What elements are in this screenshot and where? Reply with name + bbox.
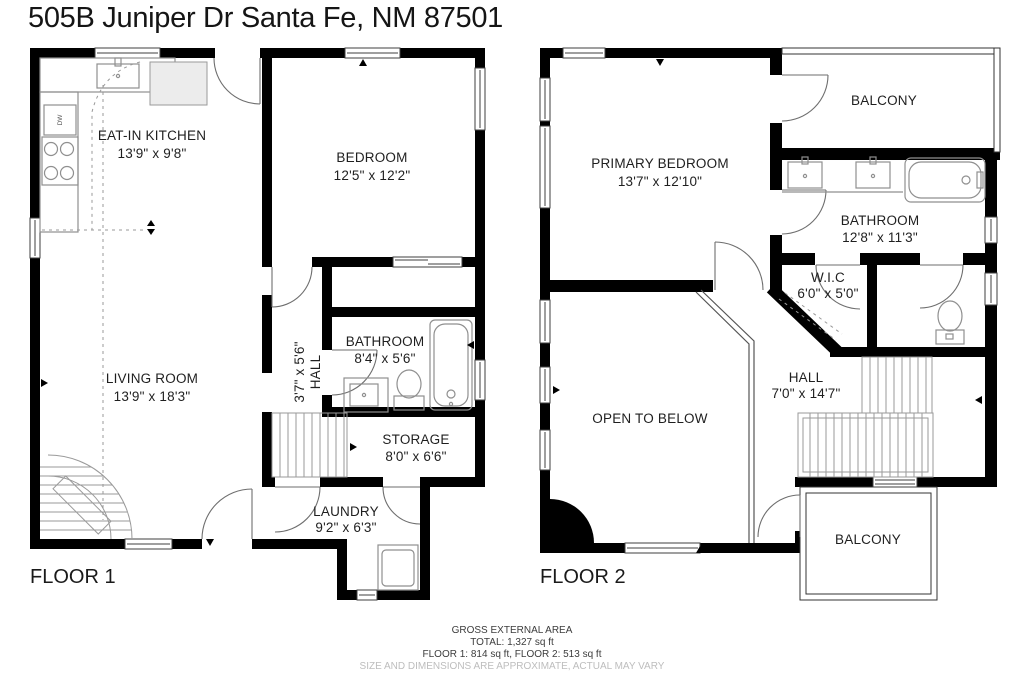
window: [985, 273, 997, 305]
dimension-arrow-icon: [147, 229, 155, 235]
stair-void-quarter: [550, 499, 594, 543]
hall2-label: HALL: [789, 370, 824, 385]
vanity-sink: [788, 157, 822, 188]
window: [540, 78, 550, 121]
area-per-floor: FLOOR 1: 814 sq ft, FLOOR 2: 513 sq ft: [0, 649, 1024, 661]
wic-label: W.I.C: [811, 270, 845, 285]
bathroom1-dims: 8'4" x 5'6": [354, 351, 415, 366]
dishwasher: DW: [44, 105, 76, 135]
laundry-right-door: [383, 487, 420, 524]
dimension-arrow-icon: [147, 220, 155, 226]
window: [540, 300, 550, 343]
area-heading: GROSS EXTERNAL AREA: [0, 625, 1024, 637]
laundry-dims: 9'2" x 6'3": [315, 520, 376, 535]
floorplan-page: 505B Juniper Dr Santa Fe, NM 87501: [0, 0, 1024, 682]
storage-label: STORAGE: [382, 432, 449, 447]
dimension-arrow-icon: [359, 59, 367, 66]
dimension-arrow-icon: [975, 396, 982, 404]
kitchen-dims: 13'9" x 9'8": [118, 146, 187, 161]
toilet: [394, 370, 424, 410]
window: [475, 360, 485, 400]
living-room-dims: 13'9" x 18'3": [114, 389, 191, 404]
dimension-arrow-icon: [41, 379, 48, 387]
window: [625, 543, 700, 553]
primary-bedroom-door: [715, 242, 763, 290]
bathroom2-fixtures: [779, 157, 985, 344]
laundry-label: LAUNDRY: [313, 504, 379, 519]
floor1-doors: [202, 58, 420, 539]
floor1-stairs: [272, 413, 347, 477]
closet-sliding-door: [393, 257, 462, 267]
window: [357, 590, 377, 600]
bedroom-dims: 12'5" x 12'2": [334, 168, 411, 183]
bathtub: [430, 320, 472, 410]
area-summary: GROSS EXTERNAL AREA TOTAL: 1,327 sq ft F…: [0, 625, 1024, 673]
floor2-plan: PRIMARY BEDROOM 13'7" x 12'10" BALCONY B…: [540, 48, 1000, 600]
floor1-label: FLOOR 1: [30, 566, 116, 588]
dishwasher-label: DW: [57, 114, 64, 126]
bedroom-label: BEDROOM: [336, 150, 407, 165]
area-total: TOTAL: 1,327 sq ft: [0, 637, 1024, 649]
primary-bedroom-label: PRIMARY BEDROOM: [591, 156, 729, 171]
balcony-lower-door: [758, 495, 800, 537]
kitchen-sink: [97, 58, 139, 88]
window: [95, 48, 160, 58]
balcony-slider-door: [873, 477, 917, 487]
area-disclaimer: SIZE AND DIMENSIONS ARE APPROXIMATE, ACT…: [0, 661, 1024, 673]
hall1-label: HALL: [308, 354, 323, 389]
hall1-dims: 3'7" x 5'6": [292, 341, 307, 402]
dimension-arrow-icon: [656, 59, 664, 66]
balcony-upper-door: [782, 75, 828, 121]
window: [345, 48, 400, 58]
window: [475, 68, 485, 130]
living-room-label: LIVING ROOM: [106, 371, 198, 386]
balcony-upper-label: BALCONY: [851, 93, 917, 108]
window: [540, 367, 550, 403]
dimension-arrow-icon: [206, 539, 214, 546]
bathroom2-door: [782, 190, 826, 234]
counter-left: [40, 92, 78, 232]
vanity-sink: [344, 378, 388, 412]
open-below-label: OPEN TO BELOW: [592, 411, 707, 426]
toilet: [936, 301, 964, 344]
floorplan-canvas: DW: [0, 0, 1024, 682]
dimension-arrow-icon: [553, 386, 560, 394]
bedroom-door: [272, 267, 312, 307]
balcony-lower-label: BALCONY: [835, 532, 901, 547]
window: [540, 430, 550, 470]
hall2-dims: 7'0" x 14'7": [772, 386, 841, 401]
toilet-room-door: [920, 265, 963, 308]
front-door: [202, 489, 252, 539]
floor1-plan: DW: [30, 48, 485, 600]
dimension-arrow-icon: [350, 443, 357, 451]
window: [30, 218, 40, 258]
window: [563, 48, 605, 58]
window: [985, 217, 997, 243]
stove: [42, 137, 78, 185]
washer-dryer: [378, 545, 418, 590]
bathroom2-label: BATHROOM: [841, 213, 920, 228]
floor2-label: FLOOR 2: [540, 566, 626, 588]
storage-dims: 8'0" x 6'6": [385, 449, 446, 464]
curved-stairs: [40, 455, 132, 539]
kitchen-entry-door: [214, 58, 260, 104]
primary-bedroom-dims: 13'7" x 12'10": [618, 174, 702, 189]
bathroom1-label: BATHROOM: [346, 334, 425, 349]
window: [540, 126, 550, 208]
bathtub: [905, 158, 985, 202]
vanity-sink: [856, 157, 890, 188]
kitchen-label: EAT-IN KITCHEN: [98, 128, 206, 143]
floor2-doors: [715, 75, 963, 537]
bathroom2-dims: 12'8" x 11'3": [842, 230, 918, 245]
wic-dims: 6'0" x 5'0": [797, 286, 858, 301]
window: [125, 539, 172, 549]
refrigerator: [150, 62, 207, 105]
